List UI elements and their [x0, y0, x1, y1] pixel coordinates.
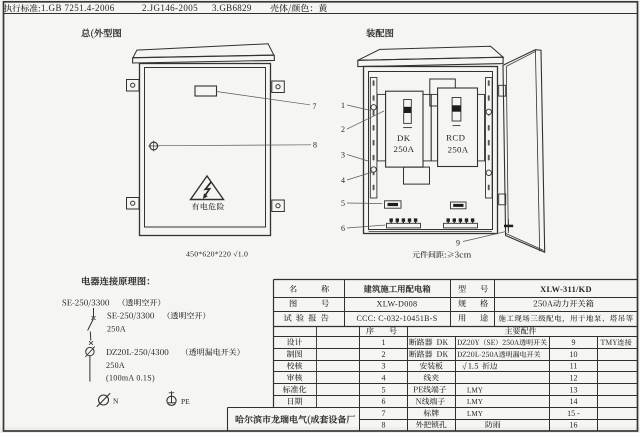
svg-text:3: 3 — [341, 151, 345, 160]
svg-text:7: 7 — [313, 102, 317, 111]
svg-text:16: 16 — [570, 420, 578, 429]
svg-text:7: 7 — [382, 409, 386, 418]
svg-text:14: 14 — [570, 397, 578, 406]
svg-text:250A: 250A — [106, 361, 125, 370]
svg-text:2.JG146-2005: 2.JG146-2005 — [142, 3, 198, 13]
svg-text:10: 10 — [570, 350, 578, 359]
svg-text:250A: 250A — [394, 144, 415, 154]
svg-text:15 -: 15 - — [567, 409, 580, 418]
svg-text:11: 11 — [570, 362, 578, 371]
svg-text:XLW-311/KD: XLW-311/KD — [540, 285, 592, 294]
svg-text:6: 6 — [341, 224, 345, 233]
svg-text:6: 6 — [382, 397, 386, 406]
svg-text:CCC: C-032-10451B-S: CCC: C-032-10451B-S — [356, 314, 437, 323]
svg-text:LMY: LMY — [467, 398, 483, 406]
svg-text:250A: 250A — [107, 325, 126, 334]
svg-text:PE: PE — [181, 397, 190, 406]
svg-text:3.GB6829: 3.GB6829 — [212, 3, 252, 13]
svg-text:1: 1 — [382, 338, 386, 347]
svg-text:13: 13 — [570, 385, 578, 394]
svg-text:8: 8 — [313, 141, 317, 150]
svg-text:4: 4 — [341, 176, 345, 185]
svg-text:1: 1 — [341, 101, 345, 110]
svg-text:XLW-D008: XLW-D008 — [377, 299, 418, 308]
svg-text:RCD: RCD — [446, 133, 465, 143]
svg-text:LMY: LMY — [467, 410, 483, 418]
svg-text:8: 8 — [382, 420, 386, 429]
svg-text:450*620*220 √1.0: 450*620*220 √1.0 — [186, 250, 248, 259]
svg-text:DK: DK — [397, 133, 411, 143]
svg-text:N: N — [113, 397, 119, 406]
svg-text:5: 5 — [341, 199, 345, 208]
svg-text:3: 3 — [382, 362, 386, 371]
svg-text:2: 2 — [341, 125, 345, 134]
svg-text:9: 9 — [572, 338, 576, 347]
svg-text:(100mA 0.1S): (100mA 0.1S) — [106, 374, 155, 383]
svg-text:2: 2 — [382, 350, 386, 359]
svg-text:250A: 250A — [448, 144, 469, 154]
svg-text:LMY: LMY — [467, 386, 483, 394]
svg-text:1.GB 7251.4-2006: 1.GB 7251.4-2006 — [41, 3, 115, 13]
svg-text:9: 9 — [456, 239, 460, 248]
svg-text:5: 5 — [382, 385, 386, 394]
svg-text:12: 12 — [570, 374, 578, 383]
svg-text:4: 4 — [382, 374, 386, 383]
